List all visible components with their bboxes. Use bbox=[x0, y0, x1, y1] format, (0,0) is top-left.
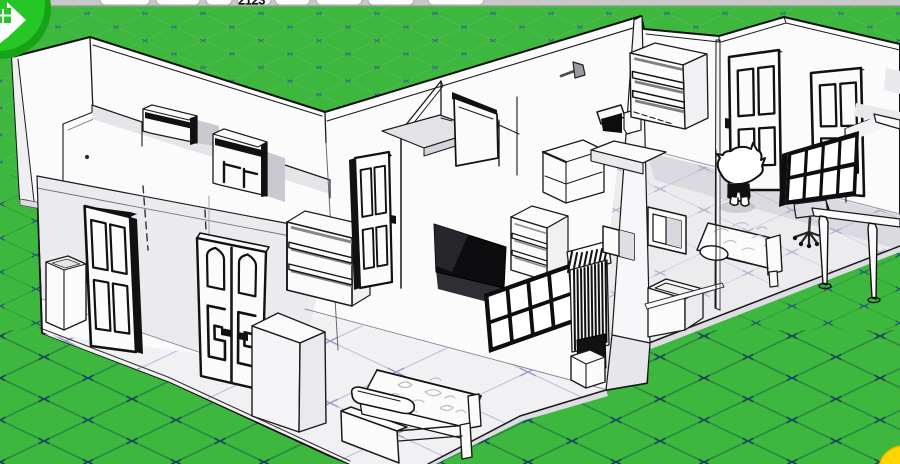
svg-text:2123: 2123 bbox=[238, 0, 265, 8]
